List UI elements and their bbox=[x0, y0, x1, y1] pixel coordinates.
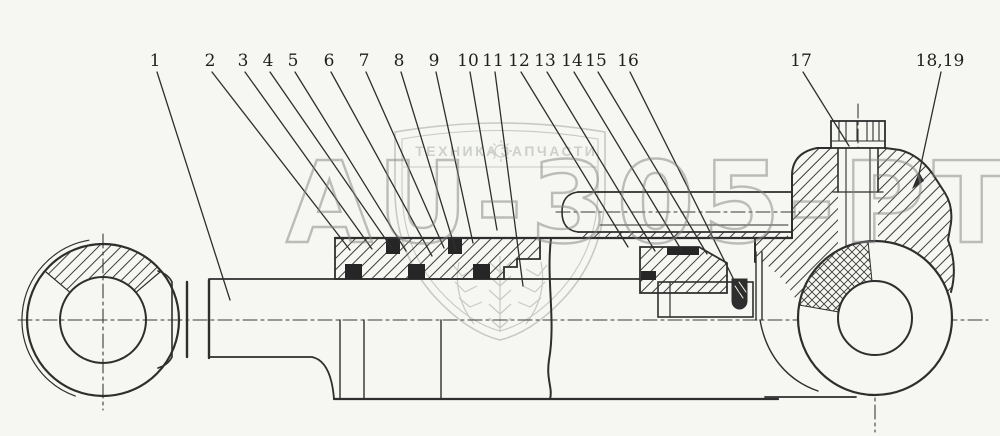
callout-5: 5 bbox=[288, 51, 299, 71]
cylinder-assembly-drawing: ТЕХНИКА ЗАПЧАСТИ bbox=[0, 0, 1000, 436]
callout-labels: 1 2 3 4 5 6 7 8 9 10 11 12 13 14 15 16 1… bbox=[150, 51, 965, 71]
watermark-text: AU-305-PT bbox=[286, 139, 1000, 269]
left-eye bbox=[22, 240, 179, 396]
callout-17: 17 bbox=[790, 51, 812, 71]
callout-13: 13 bbox=[534, 51, 556, 71]
diagram-canvas: ТЕХНИКА ЗАПЧАСТИ bbox=[0, 0, 1000, 436]
callout-7: 7 bbox=[359, 51, 370, 71]
callout-6: 6 bbox=[324, 51, 335, 71]
piston-rod bbox=[158, 271, 640, 399]
callout-18-19: 18,19 bbox=[916, 51, 965, 71]
callout-2: 2 bbox=[205, 51, 216, 71]
callout-12: 12 bbox=[508, 51, 530, 71]
callout-16: 16 bbox=[617, 51, 639, 71]
callout-14: 14 bbox=[561, 51, 583, 71]
callout-3: 3 bbox=[238, 51, 249, 71]
callout-9: 9 bbox=[429, 51, 440, 71]
callout-4: 4 bbox=[263, 51, 274, 71]
callout-8: 8 bbox=[394, 51, 405, 71]
callout-15: 15 bbox=[585, 51, 607, 71]
callout-1: 1 bbox=[150, 51, 161, 71]
callout-10: 10 bbox=[457, 51, 479, 71]
callout-11: 11 bbox=[482, 51, 504, 71]
